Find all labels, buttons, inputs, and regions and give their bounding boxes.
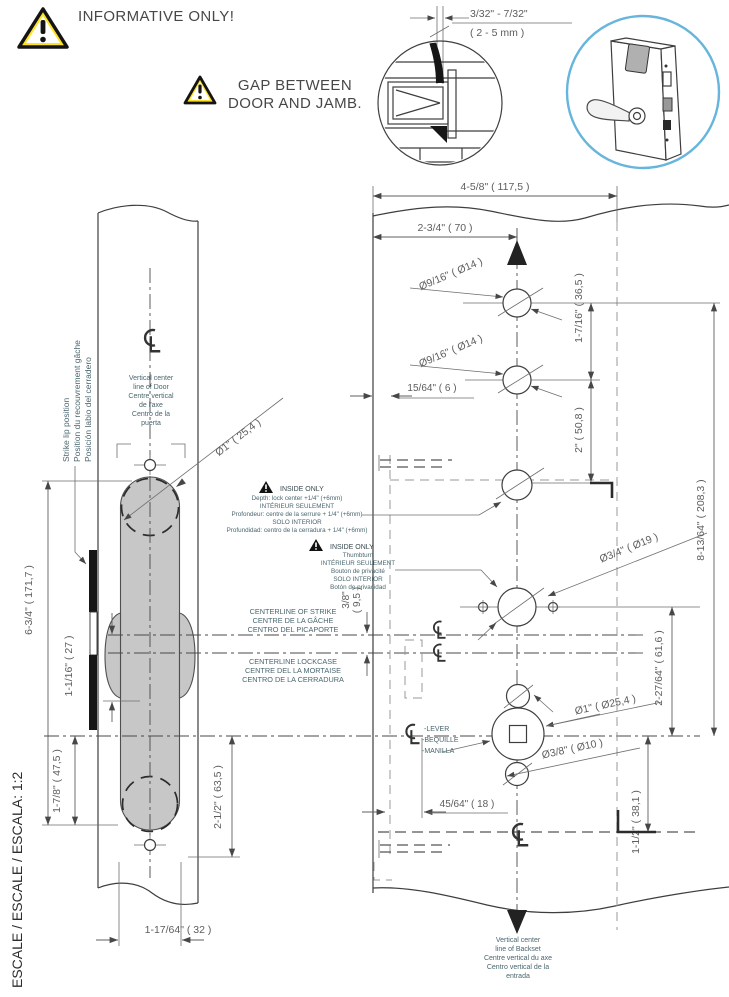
gap-warning: GAP BETWEEN DOOR AND JAMB. [185, 77, 362, 112]
svg-text:line of Door: line of Door [133, 384, 169, 391]
edge-view: Vertical center line of Door Centre vert… [23, 205, 283, 946]
svg-text:INTÉRIEUR SEULEMENT: INTÉRIEUR SEULEMENT [321, 558, 395, 567]
mount-hole-top [507, 685, 530, 708]
svg-text:Bouton de privacité: Bouton de privacité [331, 568, 385, 575]
svg-text:Botón de privacidad: Botón de privacidad [330, 584, 386, 591]
total-width-dim: 4-5/8" ( 117,5 ) [461, 181, 530, 193]
screw-center-mark [145, 840, 156, 851]
gap-dim-inches: 3/32" - 7/32" [470, 8, 528, 20]
svg-text:entrada: entrada [506, 973, 530, 980]
svg-text:Profundidad: centro de la cerr: Profundidad: centro de la cerradura + 1/… [227, 527, 368, 534]
bore-dim-label: Ø1" ( 25,4 ) [213, 416, 263, 458]
top-hole-2-dim: Ø9/16" ( Ø14 ) [417, 332, 484, 370]
top-hole-2 [503, 366, 531, 394]
scale-caption: ESCALE / ESCALE / ESCALA: 1:2 [9, 771, 25, 988]
svg-text:Centro vertical de la: Centro vertical de la [487, 964, 549, 971]
dim-208-3: 8-13/64" ( 208,3 ) [695, 479, 707, 560]
svg-text:Depth: lock center +1/4" (+6mm: Depth: lock center +1/4" (+6mm) [252, 495, 343, 502]
card-reader [625, 44, 650, 74]
door-centerline-note: Vertical center [129, 375, 174, 382]
svg-text:INSIDE ONLY: INSIDE ONLY [280, 486, 324, 493]
down-arrow [507, 910, 527, 934]
svg-text:Profondeur: centre de la serru: Profondeur: centre de la serrure + 1/4" … [231, 511, 362, 518]
svg-text:Position du recouvrement gâche: Position du recouvrement gâche [72, 340, 82, 462]
svg-text:CENTRE DE LA GÂCHE: CENTRE DE LA GÂCHE [253, 616, 334, 625]
svg-text:Centre vertical: Centre vertical [128, 393, 174, 400]
svg-text:Centre vertical du axe: Centre vertical du axe [484, 955, 552, 962]
dim-50-8: 2" ( 50,8 ) [573, 407, 585, 453]
svg-text:CENTRO DEL PICAPORTE: CENTRO DEL PICAPORTE [248, 625, 339, 634]
svg-text:SOLO INTERIOR: SOLO INTERIOR [333, 576, 383, 583]
top-hole-1-dim: Ø9/16" ( Ø14 ) [417, 255, 484, 293]
gap-dim-mm: ( 2 - 5 mm ) [470, 27, 524, 39]
centerline-symbol [406, 725, 419, 743]
inside-thumbturn-note: INSIDE ONLY Thumbturn INTÉRIEUR SEULEMEN… [309, 539, 395, 591]
strike-plate-lower [89, 655, 97, 730]
svg-text:INTÉRIEUR SEULEMENT: INTÉRIEUR SEULEMENT [260, 501, 334, 510]
edge-height-dim: 6-3/4" ( 171,7 ) [23, 565, 35, 635]
up-arrow [507, 240, 527, 265]
svg-text:INSIDE ONLY: INSIDE ONLY [330, 544, 374, 551]
lockcase-centerline-label: CENTERLINE LOCKCASE [249, 657, 337, 666]
face-view: 4-5/8" ( 117,5 ) 2-3/4" ( 70 ) Ø9/16" ( … [227, 181, 729, 980]
gap-label-line2: DOOR AND JAMB. [228, 95, 362, 112]
svg-text:SOLO INTERIOR: SOLO INTERIOR [272, 519, 322, 526]
svg-text:de l'axe: de l'axe [139, 402, 163, 409]
svg-text:Posición labio del cerradero: Posición labio del cerradero [83, 357, 93, 462]
inside-depth-note: INSIDE ONLY Depth: lock center +1/4" (+6… [227, 481, 368, 534]
strike-plate-upper [89, 550, 97, 612]
lever-spindle-hole [492, 708, 544, 760]
top-hole-1 [503, 289, 531, 317]
svg-text:Thumbturn: Thumbturn [343, 552, 374, 559]
pocket-width-dim: 1-17/64" ( 32 ) [145, 924, 212, 936]
lower-dim-a: 1-7/8" ( 47,5 ) [51, 749, 63, 813]
gap-label-line1: GAP BETWEEN [238, 77, 352, 94]
svg-text:line of Backset: line of Backset [495, 946, 541, 953]
svg-text:-BEQUILLE: -BEQUILLE [422, 737, 459, 744]
dim-38-1: 1-1/2" ( 38,1 ) [630, 790, 642, 854]
dim-18: 45/64" ( 18 ) [440, 799, 495, 810]
strike-opening [90, 612, 97, 655]
dim-36-5: 1-7/16" ( 36,5 ) [573, 273, 585, 343]
svg-text:CENTRO DE LA CERRADURA: CENTRO DE LA CERRADURA [242, 675, 344, 684]
lever-label: -LEVER [424, 726, 449, 733]
gap-detail-view: 3/32" - 7/32" ( 2 - 5 mm ) [378, 6, 572, 172]
strike-offset-dim-a: 3/8" [341, 591, 352, 609]
informative-warning: INFORMATIVE ONLY! [19, 8, 234, 47]
svg-text:-MANILLA: -MANILLA [422, 748, 455, 755]
centerline-symbol [145, 330, 160, 351]
centerline-symbol [513, 824, 528, 845]
installation-template-drawing: INFORMATIVE ONLY! GAP BETWEEN DOOR AND J… [0, 0, 729, 997]
backset-dim: 2-3/4" ( 70 ) [417, 222, 472, 234]
lock-illustration [567, 16, 719, 168]
strike-centerline-label: CENTERLINE OF STRIKE [250, 607, 337, 616]
svg-text:CENTRE DEL LA MORTAISE: CENTRE DEL LA MORTAISE [245, 666, 341, 675]
gap-section [378, 40, 502, 172]
backset-centerline-note: Vertical center [496, 937, 541, 944]
dim-61-6: 2-27/64" ( 61,6 ) [653, 630, 665, 706]
informative-only-label: INFORMATIVE ONLY! [78, 8, 234, 25]
edge-offset-dim: 15/64" ( 6 ) [407, 383, 456, 394]
thumbturn-hole-dim: Ø3/4" ( Ø19 ) [598, 531, 660, 565]
centerline-gap-dim: 1-1/16" ( 27 ) [63, 636, 75, 697]
lower-dim-b: 2-1/2" ( 63,5 ) [212, 765, 224, 829]
svg-text:Centro de la: Centro de la [132, 411, 170, 418]
lock-installation-template: INFORMATIVE ONLY! GAP BETWEEN DOOR AND J… [0, 0, 729, 997]
svg-text:puerta: puerta [141, 420, 161, 427]
screw-center-mark [145, 460, 156, 471]
strike-lip-note: Strike lip position [61, 397, 71, 462]
